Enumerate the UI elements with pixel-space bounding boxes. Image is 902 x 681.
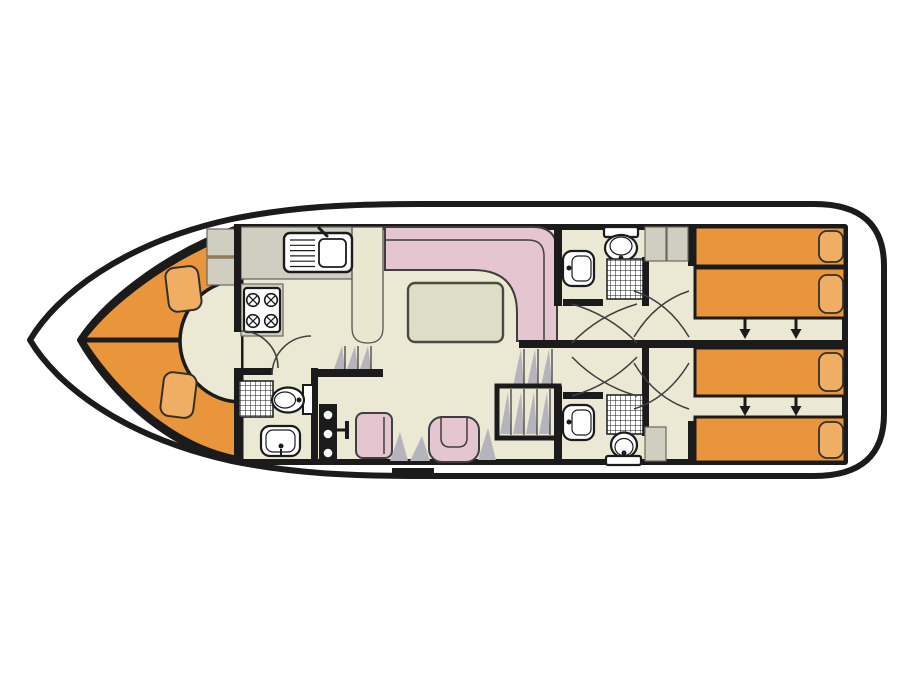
bed-pillow xyxy=(819,231,843,262)
toilet-flush-dot xyxy=(297,398,302,403)
console-dial-icon xyxy=(324,411,333,420)
u-chair xyxy=(429,417,479,462)
burner-icon xyxy=(247,315,260,328)
burner-icon xyxy=(265,294,278,307)
saloon-aft-wall-upper xyxy=(554,224,562,306)
fwd-bathroom-top-wall xyxy=(234,368,272,375)
fwd-bathroom-right-wall xyxy=(311,368,318,464)
console-dial-icon xyxy=(324,430,333,439)
sink-basin xyxy=(319,239,346,267)
bow-bulkhead-upper xyxy=(234,224,241,332)
boat-floorplan-canvas xyxy=(0,0,902,676)
stairwell-wall-lower xyxy=(554,386,562,464)
sink-drain-dot xyxy=(279,444,284,449)
wardrobe xyxy=(645,427,666,461)
sink-drain-dot xyxy=(567,420,572,425)
wardrobe xyxy=(645,227,666,261)
step-edge-wall xyxy=(311,369,383,377)
galley-peninsula xyxy=(352,227,383,343)
bed-pillow xyxy=(819,275,843,313)
bow-cabinet-2 xyxy=(207,258,237,285)
bow-cabinet-1 xyxy=(207,229,237,256)
shower-icon xyxy=(239,381,273,417)
toilet-tank xyxy=(606,456,641,465)
throttle-handle xyxy=(345,421,349,439)
saloon-table xyxy=(408,283,503,342)
wardrobe xyxy=(667,227,688,261)
bow-pillow-bottom xyxy=(159,371,197,419)
console-dial-icon xyxy=(324,449,333,458)
saloon xyxy=(385,227,557,342)
bed-pillow xyxy=(819,353,843,391)
bath-top-lower-wall xyxy=(563,299,603,306)
boarding-step xyxy=(392,468,434,474)
floorplan-svg xyxy=(0,0,902,676)
helm-seat xyxy=(356,413,392,458)
burner-icon xyxy=(265,315,278,328)
toilet-flush-dot xyxy=(622,451,627,456)
bow-pillow-top xyxy=(164,265,202,313)
bed-pillow xyxy=(819,422,843,458)
shower-icon xyxy=(607,395,643,434)
burner-icon xyxy=(247,294,260,307)
sink-drain-dot xyxy=(567,266,572,271)
